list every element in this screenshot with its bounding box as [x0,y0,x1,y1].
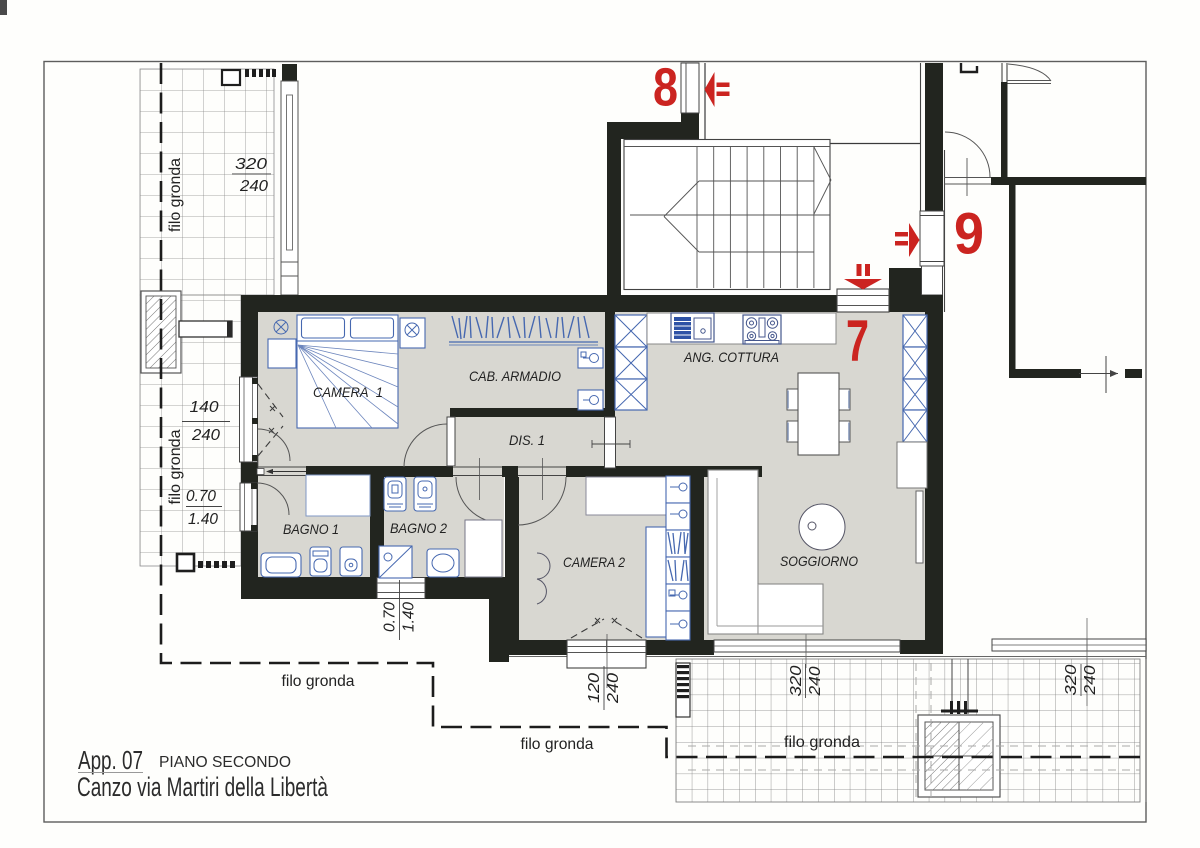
svg-text:Canzo via Martiri della Libert: Canzo via Martiri della Libertà [77,772,329,802]
svg-text:0.70: 0.70 [382,602,399,632]
svg-text:320: 320 [235,156,267,173]
svg-text:PIANO SECONDO: PIANO SECONDO [159,754,291,771]
svg-text:ANG. COTTURA: ANG. COTTURA [683,349,779,365]
svg-text:BAGNO 1: BAGNO 1 [283,521,339,537]
svg-text:filo gronda: filo gronda [282,673,355,690]
svg-text:CAMERA 1: CAMERA 1 [313,384,383,400]
svg-text:filo gronda: filo gronda [784,734,860,751]
svg-text:DIS. 1: DIS. 1 [509,432,545,448]
svg-text:CAMERA 2: CAMERA 2 [563,554,625,570]
svg-text:320: 320 [1063,664,1080,695]
svg-text:240: 240 [239,178,268,195]
svg-text:1.40: 1.40 [401,602,418,632]
svg-text:CAB. ARMADIO: CAB. ARMADIO [469,368,561,384]
svg-text:0.70: 0.70 [186,488,216,505]
svg-text:8: 8 [653,58,678,118]
svg-text:1.40: 1.40 [188,511,218,528]
svg-text:filo gronda: filo gronda [521,736,594,753]
svg-text:120: 120 [586,673,603,703]
svg-text:240: 240 [605,673,622,704]
svg-text:9: 9 [954,202,984,267]
svg-text:7: 7 [846,309,869,374]
svg-text:SOGGIORNO: SOGGIORNO [780,553,858,569]
svg-text:BAGNO 2: BAGNO 2 [390,520,447,536]
svg-text:filo gronda: filo gronda [167,158,184,232]
svg-text:240: 240 [807,666,824,696]
svg-text:240: 240 [191,427,220,444]
svg-text:140: 140 [190,399,219,416]
svg-text:240: 240 [1082,665,1099,695]
svg-text:filo gronda: filo gronda [167,429,184,504]
svg-text:App. 07: App. 07 [78,745,143,775]
svg-text:320: 320 [788,665,805,696]
